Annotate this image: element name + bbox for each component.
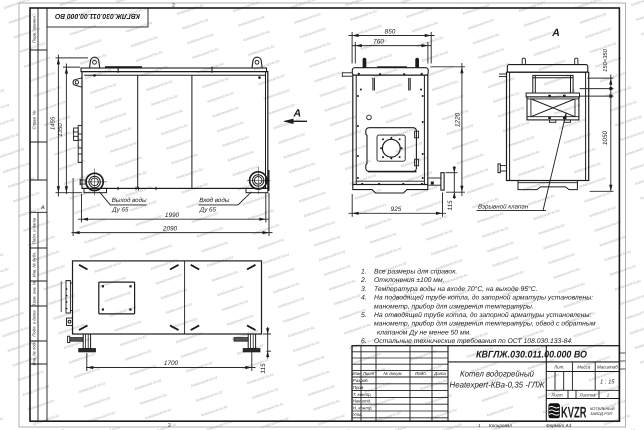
svg-text:2090: 2090 xyxy=(162,225,178,232)
svg-text:150×350: 150×350 xyxy=(602,48,609,72)
svg-text:манометр, прибор для измерения: манометр, прибор для измерения температу… xyxy=(374,303,534,310)
svg-text:Выход воды: Выход воды xyxy=(112,197,147,204)
svg-text:А: А xyxy=(40,205,45,211)
svg-text:850: 850 xyxy=(385,28,396,35)
svg-text:Взрывной клапан: Взрывной клапан xyxy=(478,204,529,211)
svg-text:На подводящей трубе котла, до: На подводящей трубе котла, до запорной а… xyxy=(374,294,593,302)
svg-text:Лист: Лист xyxy=(550,393,563,398)
svg-text:1220: 1220 xyxy=(455,112,462,127)
svg-text:Лист: Лист xyxy=(362,371,375,376)
svg-text:115: 115 xyxy=(260,363,267,374)
svg-text:Масса: Масса xyxy=(577,365,591,370)
svg-text:А: А xyxy=(293,108,302,120)
svg-text:Т. контр.: Т. контр. xyxy=(353,392,372,397)
svg-text:Все размеры для справок.: Все размеры для справок. xyxy=(374,269,457,276)
svg-text:Взам. инв. №: Взам. инв. № xyxy=(32,280,37,306)
svg-text:925: 925 xyxy=(391,206,402,213)
svg-text:Отклонения ±100 мм.: Отклонения ±100 мм. xyxy=(374,277,445,284)
svg-text:Температура воды на входе 70°С: Температура воды на входе 70°С, на выход… xyxy=(374,286,538,293)
svg-text:2: 2 xyxy=(168,423,171,429)
svg-text:ЗАВОД РЭП: ЗАВОД РЭП xyxy=(590,411,613,416)
svg-text:1050: 1050 xyxy=(602,130,609,145)
svg-text:Пров.: Пров. xyxy=(353,385,365,390)
svg-text:1: 1 xyxy=(478,423,481,428)
svg-text:Подп.: Подп. xyxy=(415,371,427,376)
svg-text:Копировал: Копировал xyxy=(489,423,512,428)
svg-text:Подп. и дата: Подп. и дата xyxy=(32,217,37,244)
svg-text:КВГЛЖ.030.011.00.000 ВО: КВГЛЖ.030.011.00.000 ВО xyxy=(476,349,587,360)
svg-text:А: А xyxy=(551,27,560,39)
svg-text:5.: 5. xyxy=(361,312,367,319)
svg-text:Остальные технические требован: Остальные технические требования по ОСТ … xyxy=(374,338,573,345)
svg-text:Масштаб: Масштаб xyxy=(597,365,618,370)
svg-text:4.: 4. xyxy=(361,295,367,302)
svg-text:Ду 65: Ду 65 xyxy=(199,207,217,214)
svg-text:Листов: Листов xyxy=(579,393,597,398)
svg-text:КВГЛЖ.030.011.00.000 ВО: КВГЛЖ.030.011.00.000 ВО xyxy=(55,12,140,21)
svg-text:KVZR: KVZR xyxy=(561,404,587,421)
svg-text:Ду 65: Ду 65 xyxy=(111,207,129,214)
svg-text:Утв.: Утв. xyxy=(353,412,363,417)
svg-text:3.: 3. xyxy=(361,286,367,293)
svg-text:№ докум.: № докум. xyxy=(383,371,402,376)
svg-text:Котел водогрейный: Котел водогрейный xyxy=(460,369,534,379)
svg-text:Вход воды: Вход воды xyxy=(199,197,229,204)
svg-text:Нач.отд.: Нач.отд. xyxy=(353,399,372,404)
svg-text:1.: 1. xyxy=(361,269,367,276)
svg-text:Инв. № подл.: Инв. № подл. xyxy=(32,340,37,366)
svg-text:Heatexpert-КВа-0,35 -ГЛЖ: Heatexpert-КВа-0,35 -ГЛЖ xyxy=(450,380,546,390)
svg-text:2: 2 xyxy=(172,3,175,9)
svg-text:2.: 2. xyxy=(360,277,367,284)
svg-text:манометр, прибор для измерения: манометр, прибор для измерения температу… xyxy=(374,321,596,328)
svg-text:На отводящей трубе котла, до з: На отводящей трубе котла, до запорной ар… xyxy=(374,311,591,319)
svg-text:760: 760 xyxy=(373,39,384,46)
svg-text:1455: 1455 xyxy=(49,116,56,130)
svg-text:1700: 1700 xyxy=(164,360,179,367)
svg-text:Дата: Дата xyxy=(433,371,446,376)
svg-text:115: 115 xyxy=(447,200,454,211)
svg-text:6.: 6. xyxy=(361,338,367,345)
svg-text:Инв. № дубл.: Инв. № дубл. xyxy=(32,252,37,278)
svg-text:Формат А3: Формат А3 xyxy=(546,423,572,428)
svg-text:клапаном Ду не менее 50 мм.: клапаном Ду не менее 50 мм. xyxy=(377,329,471,336)
svg-text:1990: 1990 xyxy=(165,212,180,219)
svg-text:1350: 1350 xyxy=(57,123,64,137)
svg-text:Подп. и дата: Подп. и дата xyxy=(32,310,37,337)
svg-text:Перв. примен.: Перв. примен. xyxy=(32,15,37,43)
svg-text:Н. контр.: Н. контр. xyxy=(353,405,373,410)
svg-text:Изм: Изм xyxy=(352,371,360,376)
svg-text:Справ. №: Справ. № xyxy=(32,110,37,129)
svg-text:Лит.: Лит. xyxy=(553,365,564,370)
svg-text:Разраб.: Разраб. xyxy=(353,378,369,383)
svg-text:1 : 15: 1 : 15 xyxy=(600,380,615,386)
